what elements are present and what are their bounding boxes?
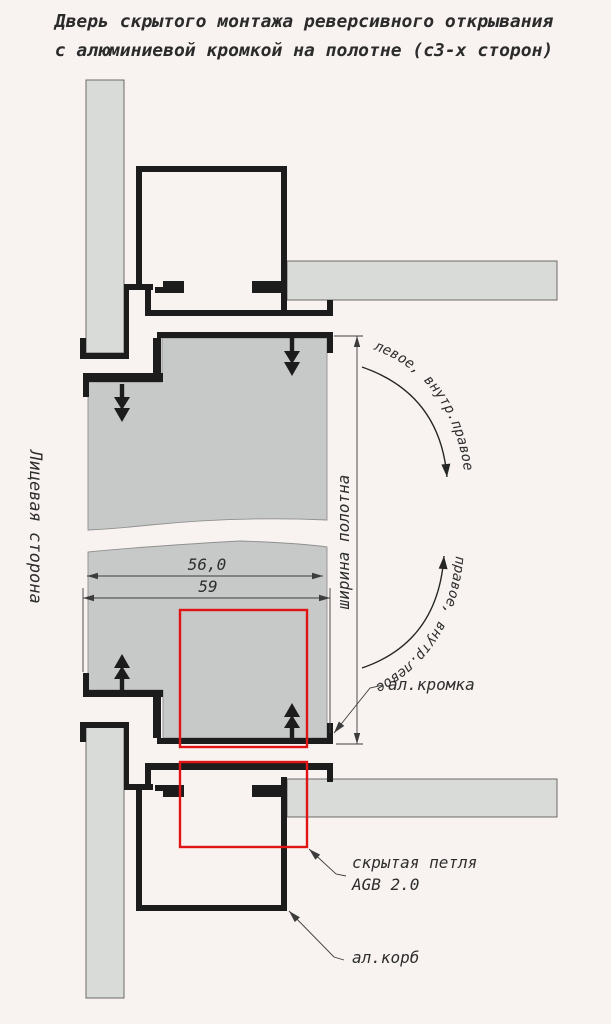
wall-panel-bottom-right <box>287 779 557 817</box>
wall-stud-top <box>86 80 124 353</box>
side-label: Лицевая сторона <box>25 448 45 604</box>
leader-al-korb: ал.корб <box>286 909 419 967</box>
label-hinge-line2: AGB 2.0 <box>351 875 419 894</box>
label-al-kromka: ал.кромка <box>388 675 475 694</box>
wall-panel-top-right <box>287 261 557 300</box>
technical-drawing: Дверь скрытого монтажа реверсивного откр… <box>0 0 611 1024</box>
leader-hinge: скрытая петля AGB 2.0 <box>307 846 478 894</box>
leader-al-kromka: ал.кромка <box>331 675 474 735</box>
label-al-korb: ал.корб <box>352 948 419 967</box>
drawing-page: Дверь скрытого монтажа реверсивного откр… <box>0 0 611 1024</box>
swing-label-upper: левое, внутр.правое <box>371 338 476 472</box>
dimension-panel-width: ширина полотна <box>334 336 363 744</box>
title-line-2: с алюминиевой кромкой на полотне (с3-х с… <box>55 40 554 61</box>
dimension-panel-width-label: ширина полотна <box>334 475 353 610</box>
dimension-56-value: 56,0 <box>188 555 227 574</box>
dimension-59-value: 59 <box>198 577 217 596</box>
title-line-1: Дверь скрытого монтажа реверсивного откр… <box>53 11 554 32</box>
swing-arc-upper: левое, внутр.правое <box>362 338 476 477</box>
wall-stud-bottom <box>86 727 124 998</box>
label-hinge-line1: скрытая петля <box>352 853 477 872</box>
